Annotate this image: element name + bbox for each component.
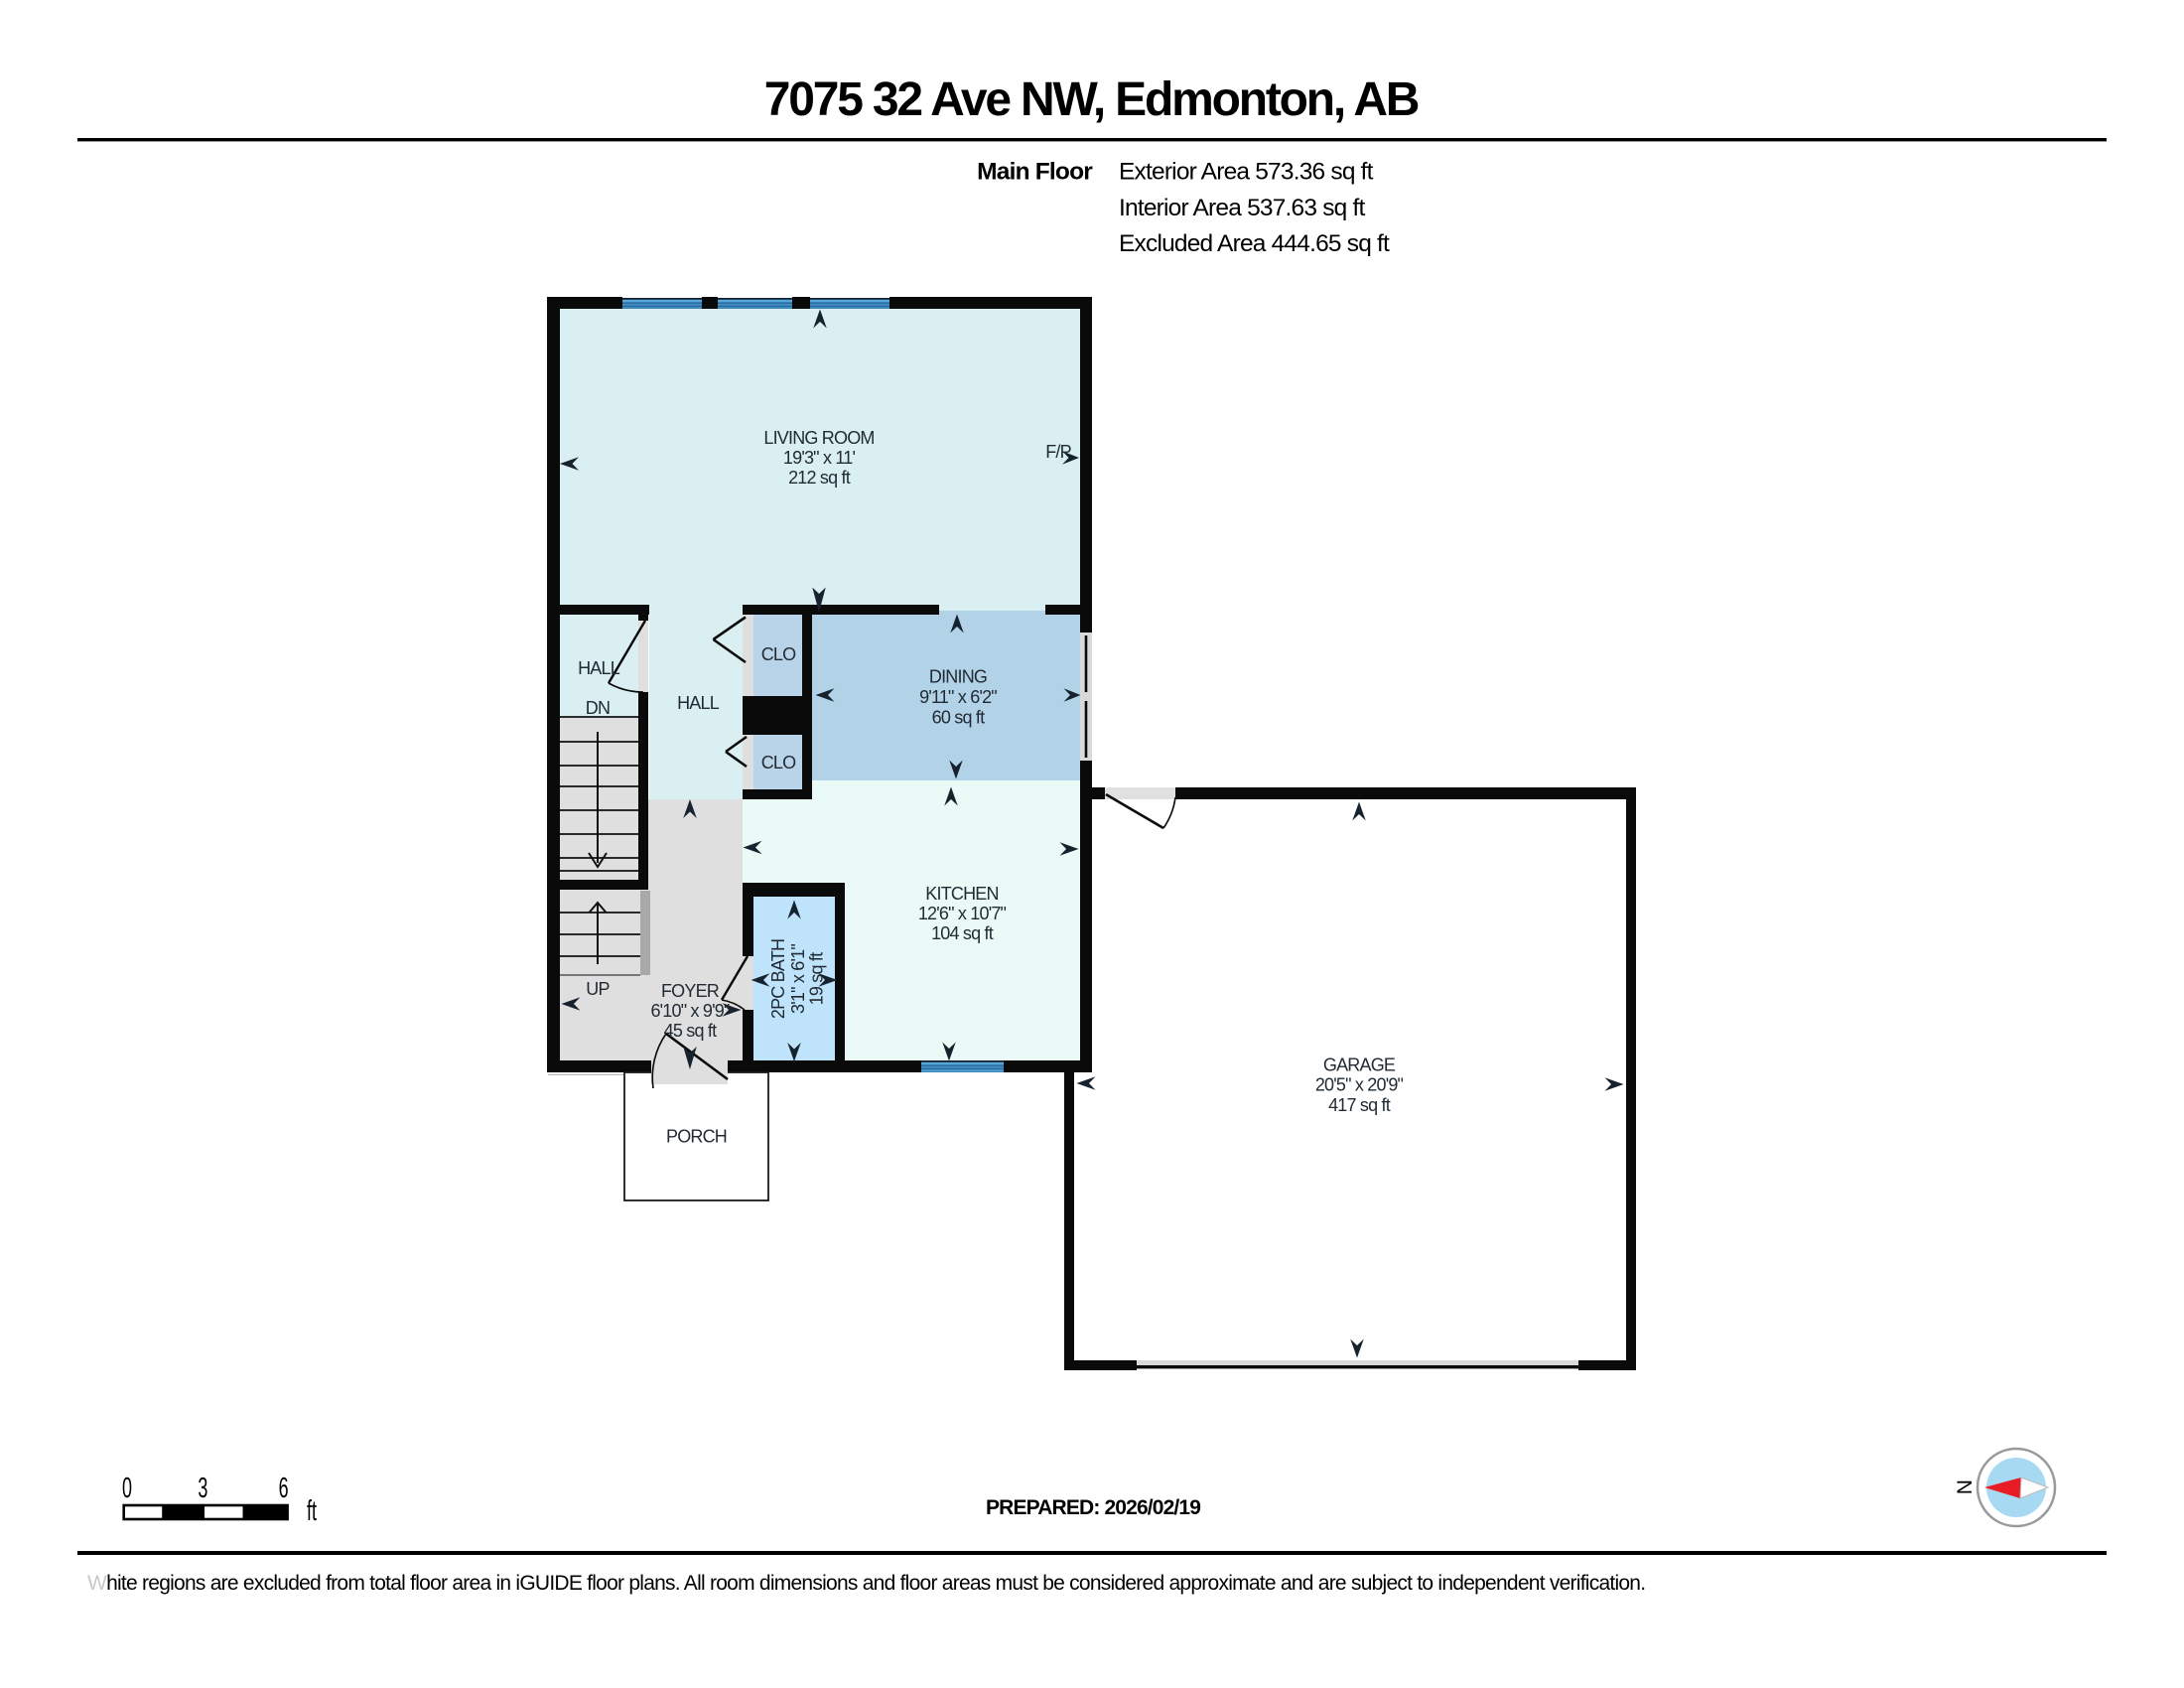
svg-text:212 sq ft: 212 sq ft (788, 468, 851, 488)
svg-text:7075 32 Ave NW, Edmonton, AB: 7075 32 Ave NW, Edmonton, AB (764, 73, 1419, 126)
svg-text:6: 6 (279, 1473, 289, 1504)
svg-text:N: N (1954, 1480, 1977, 1494)
svg-text:UP: UP (586, 979, 610, 999)
svg-text:19 sq ft: 19 sq ft (807, 952, 827, 1005)
svg-text:White regions are excluded fro: White regions are excluded from total fl… (87, 1572, 1645, 1595)
svg-text:9'11" x 6'2": 9'11" x 6'2" (919, 687, 997, 707)
svg-text:45 sq ft: 45 sq ft (664, 1021, 717, 1041)
svg-text:KITCHEN: KITCHEN (925, 884, 998, 904)
svg-text:417 sq ft: 417 sq ft (1328, 1095, 1391, 1115)
svg-text:0: 0 (122, 1473, 132, 1504)
svg-text:F/P: F/P (1045, 442, 1071, 462)
svg-text:HALL: HALL (578, 658, 620, 678)
svg-text:LIVING ROOM: LIVING ROOM (763, 428, 874, 448)
svg-text:HALL: HALL (677, 693, 720, 713)
svg-text:GARAGE: GARAGE (1323, 1055, 1396, 1075)
svg-text:CLO: CLO (761, 644, 796, 664)
svg-text:20'5" x 20'9": 20'5" x 20'9" (1315, 1075, 1404, 1095)
svg-text:6'10" x 9'9": 6'10" x 9'9" (650, 1001, 730, 1021)
svg-text:ft: ft (307, 1495, 317, 1527)
svg-text:3'1" x 6'1": 3'1" x 6'1" (788, 944, 808, 1014)
svg-text:FOYER: FOYER (661, 981, 720, 1001)
svg-text:19'3" x 11': 19'3" x 11' (783, 448, 856, 468)
svg-text:Excluded Area 444.65 sq ft: Excluded Area 444.65 sq ft (1119, 230, 1390, 257)
svg-text:104 sq ft: 104 sq ft (931, 923, 994, 943)
svg-text:DINING: DINING (929, 667, 987, 687)
svg-text:2PC BATH: 2PC BATH (768, 939, 788, 1019)
svg-text:Main Floor: Main Floor (977, 159, 1093, 186)
svg-text:Exterior Area 573.36 sq ft: Exterior Area 573.36 sq ft (1119, 159, 1374, 186)
svg-text:12'6" x 10'7": 12'6" x 10'7" (918, 904, 1007, 923)
svg-text:60 sq ft: 60 sq ft (932, 708, 985, 728)
svg-text:PORCH: PORCH (666, 1127, 727, 1147)
svg-text:DN: DN (586, 698, 610, 718)
svg-text:3: 3 (198, 1473, 207, 1504)
svg-text:PREPARED: 2026/02/19: PREPARED: 2026/02/19 (986, 1496, 1200, 1519)
svg-text:Interior Area 537.63 sq ft: Interior Area 537.63 sq ft (1119, 195, 1365, 221)
svg-text:CLO: CLO (761, 753, 796, 773)
